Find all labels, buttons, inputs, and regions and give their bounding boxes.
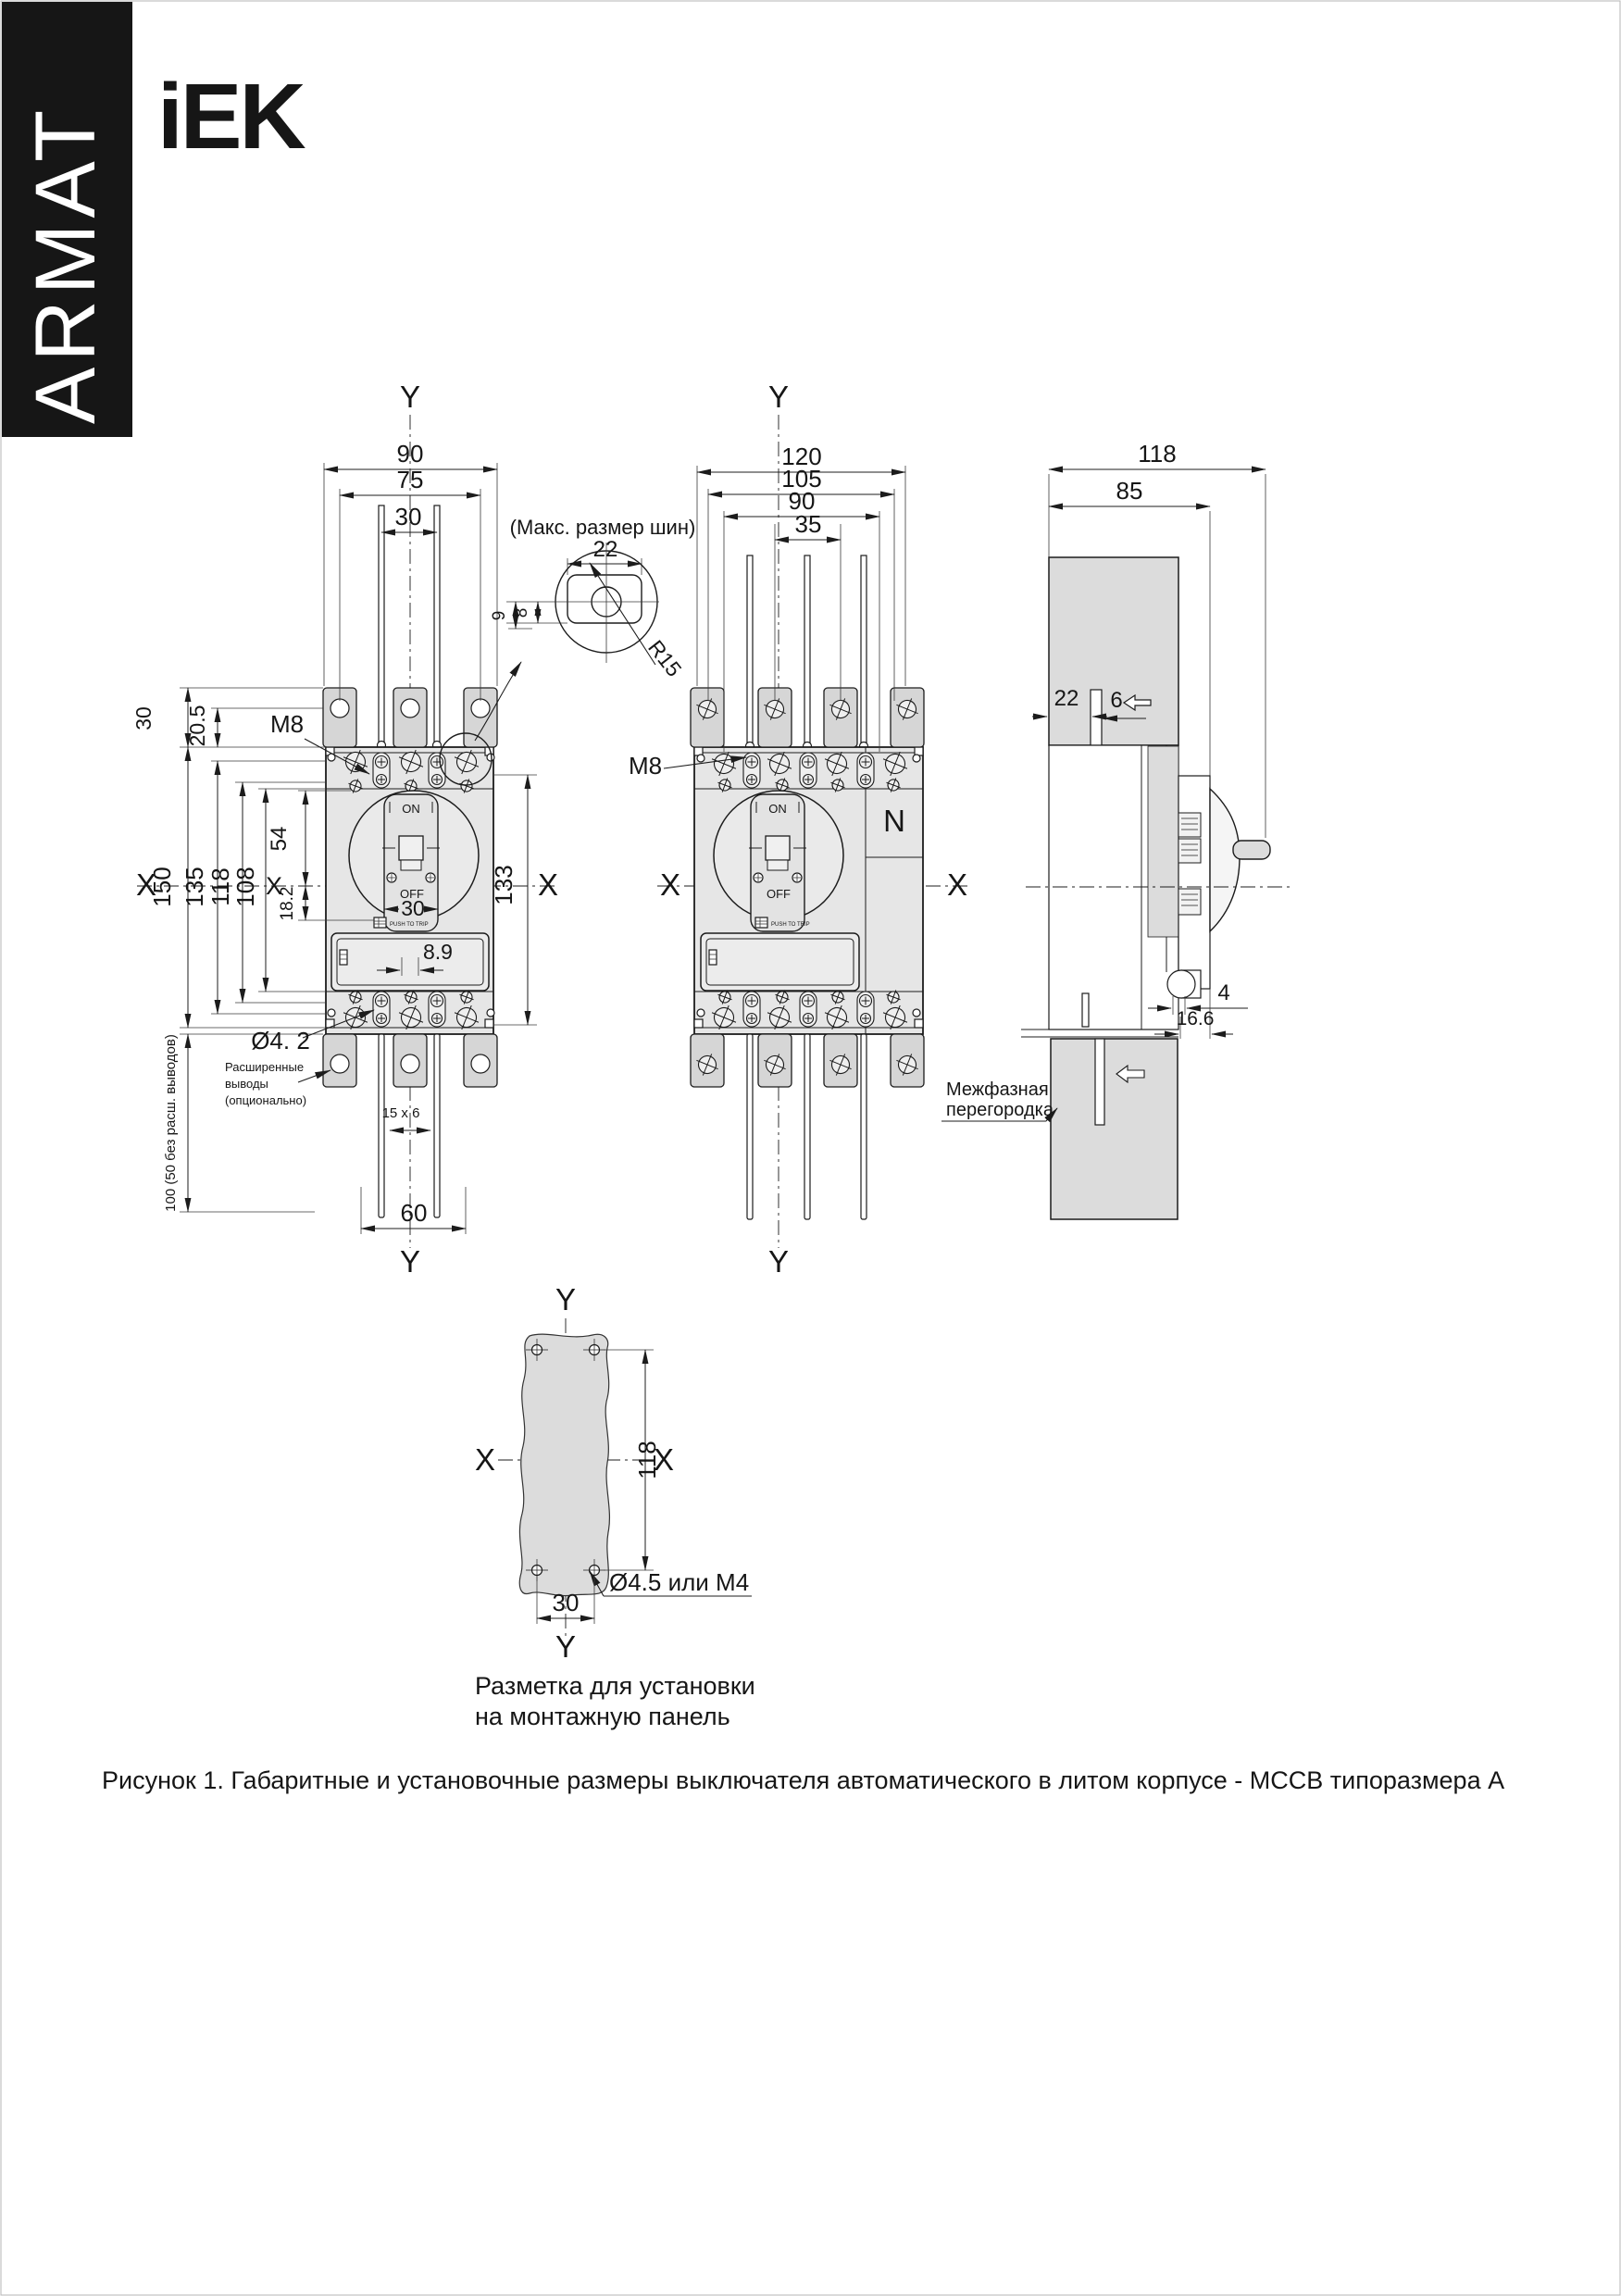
- mounting-template: Y Y X X 118 Ø4.5 или М4 30 Разметка для …: [475, 1282, 755, 1730]
- bottom-terminal-pads: [323, 1034, 497, 1087]
- n-pole-label: N: [883, 804, 905, 838]
- dim-8-9: 8.9: [423, 940, 453, 964]
- axis-y-top: Y: [400, 380, 420, 414]
- toggle-handle: [399, 836, 423, 860]
- datasheet-page: ARMAT iEK: [0, 0, 1621, 2296]
- ext-terminals-line1: Расширенные: [225, 1060, 304, 1074]
- banner-label: ARMAT: [19, 105, 113, 424]
- ext-terminals-line2: выводы: [225, 1077, 268, 1091]
- dim-60-bottom: 60: [401, 1199, 428, 1227]
- dim-4-side: 4: [1217, 980, 1229, 1005]
- dim-15x6: 15 x 6: [382, 1105, 420, 1121]
- barrier-slot-bottom: [1095, 1039, 1104, 1125]
- axis-x-right-4p: X: [947, 867, 967, 902]
- dim-90-top: 90: [397, 440, 424, 468]
- template-caption-line2: на монтажную панель: [475, 1703, 730, 1730]
- push-to-trip-label-4p: PUSH TO TRIP: [771, 922, 810, 928]
- m8-label-4p: M8: [629, 752, 662, 780]
- dim-54-left: 54: [267, 827, 292, 852]
- upper-barrier-plate: [1049, 557, 1178, 745]
- front-view-4p: N ON OFF PUSH TO TRIP: [629, 380, 972, 1279]
- dim-118-left: 118: [206, 867, 234, 905]
- dim-30-left: 30: [131, 706, 156, 730]
- axis-y-top-4p: Y: [768, 380, 789, 414]
- axis-y-bottom-4p: Y: [768, 1244, 789, 1279]
- dim-35-top: 35: [795, 510, 822, 538]
- dim-118-tpl: 118: [633, 1441, 661, 1479]
- on-label: ON: [402, 802, 420, 816]
- brand-banner: ARMAT: [2, 2, 132, 437]
- rating-plate-4p: [701, 933, 859, 991]
- bus-detail: (Макс. размер шин) 22 9 8 R15: [475, 516, 695, 741]
- technical-drawing: ARMAT iEK: [0, 0, 1621, 2296]
- dim-108-left: 108: [231, 867, 259, 906]
- dim-85-side: 85: [1116, 477, 1143, 505]
- iek-logo: iEK: [157, 65, 305, 168]
- front-view-3p: ON OFF PUSH TO TRIP 30 8.9: [131, 380, 559, 1279]
- bus-detail-title: (Макс. размер шин): [510, 516, 696, 539]
- axis-x-right: X: [538, 867, 558, 902]
- dim-118-side: 118: [1138, 440, 1176, 468]
- hole-spec-label: Ø4.5 или М4: [609, 1568, 749, 1596]
- partition-label-line1: Межфазная: [946, 1079, 1049, 1100]
- dim-6-side: 6: [1110, 688, 1122, 713]
- axis-x-left-4p: X: [660, 867, 680, 902]
- push-to-trip-label: PUSH TO TRIP: [390, 922, 429, 928]
- ext-terminals-line3: (опционально): [225, 1093, 306, 1107]
- axis-y-bottom: Y: [400, 1244, 420, 1279]
- on-label-4p: ON: [768, 802, 787, 816]
- bus-r15-label: R15: [643, 635, 686, 680]
- template-caption-line1: Разметка для установки: [475, 1672, 755, 1700]
- bus-dim-9: 9: [490, 611, 509, 621]
- mounting-foot: [1167, 970, 1195, 998]
- breaker-front-face: [1178, 776, 1210, 989]
- toggle-handle-side: [1233, 841, 1270, 859]
- side-view: 118 85 22 6: [941, 440, 1294, 1219]
- axis-x-left-tpl: X: [475, 1442, 495, 1477]
- dim-20-5-left: 20.5: [185, 705, 209, 747]
- push-to-trip-icon-4p: [755, 917, 767, 928]
- m8-label: M8: [270, 710, 304, 738]
- off-label-4p: OFF: [767, 887, 791, 901]
- partition-label-line2: перегородка: [946, 1100, 1054, 1120]
- dim-30-top: 30: [395, 503, 422, 530]
- barrier-slot-top: [1091, 690, 1102, 745]
- dim-toggle-30: 30: [401, 896, 425, 920]
- dim-100-left: 100 (50 без расш. выводов): [163, 1034, 179, 1212]
- dim-16-6-side: 16.6: [1177, 1008, 1215, 1029]
- dim-75-top: 75: [397, 466, 424, 493]
- dia-4-2-label: Ø4. 2: [251, 1027, 310, 1054]
- axis-y-top-tpl: Y: [555, 1282, 576, 1316]
- push-to-trip-icon: [374, 917, 386, 928]
- figure-caption: Рисунок 1. Габаритные и установочные раз…: [102, 1766, 1504, 1794]
- dim-150-left: 150: [148, 867, 176, 906]
- bus-dim-8: 8: [512, 608, 531, 618]
- interphase-barrier: [1051, 1039, 1178, 1219]
- bus-dim-22: 22: [593, 537, 618, 562]
- dim-135-left: 135: [181, 867, 208, 906]
- rating-plate: [331, 933, 489, 991]
- dim-133-right: 133: [490, 865, 517, 905]
- mounting-panel-patch: [519, 1334, 609, 1595]
- dim-22-side: 22: [1054, 686, 1079, 711]
- toggle-dome: [1210, 789, 1240, 931]
- dim-18-2-left: 18.2: [278, 887, 297, 921]
- top-terminal-pads: [323, 688, 497, 747]
- dim-30-tpl: 30: [553, 1589, 580, 1616]
